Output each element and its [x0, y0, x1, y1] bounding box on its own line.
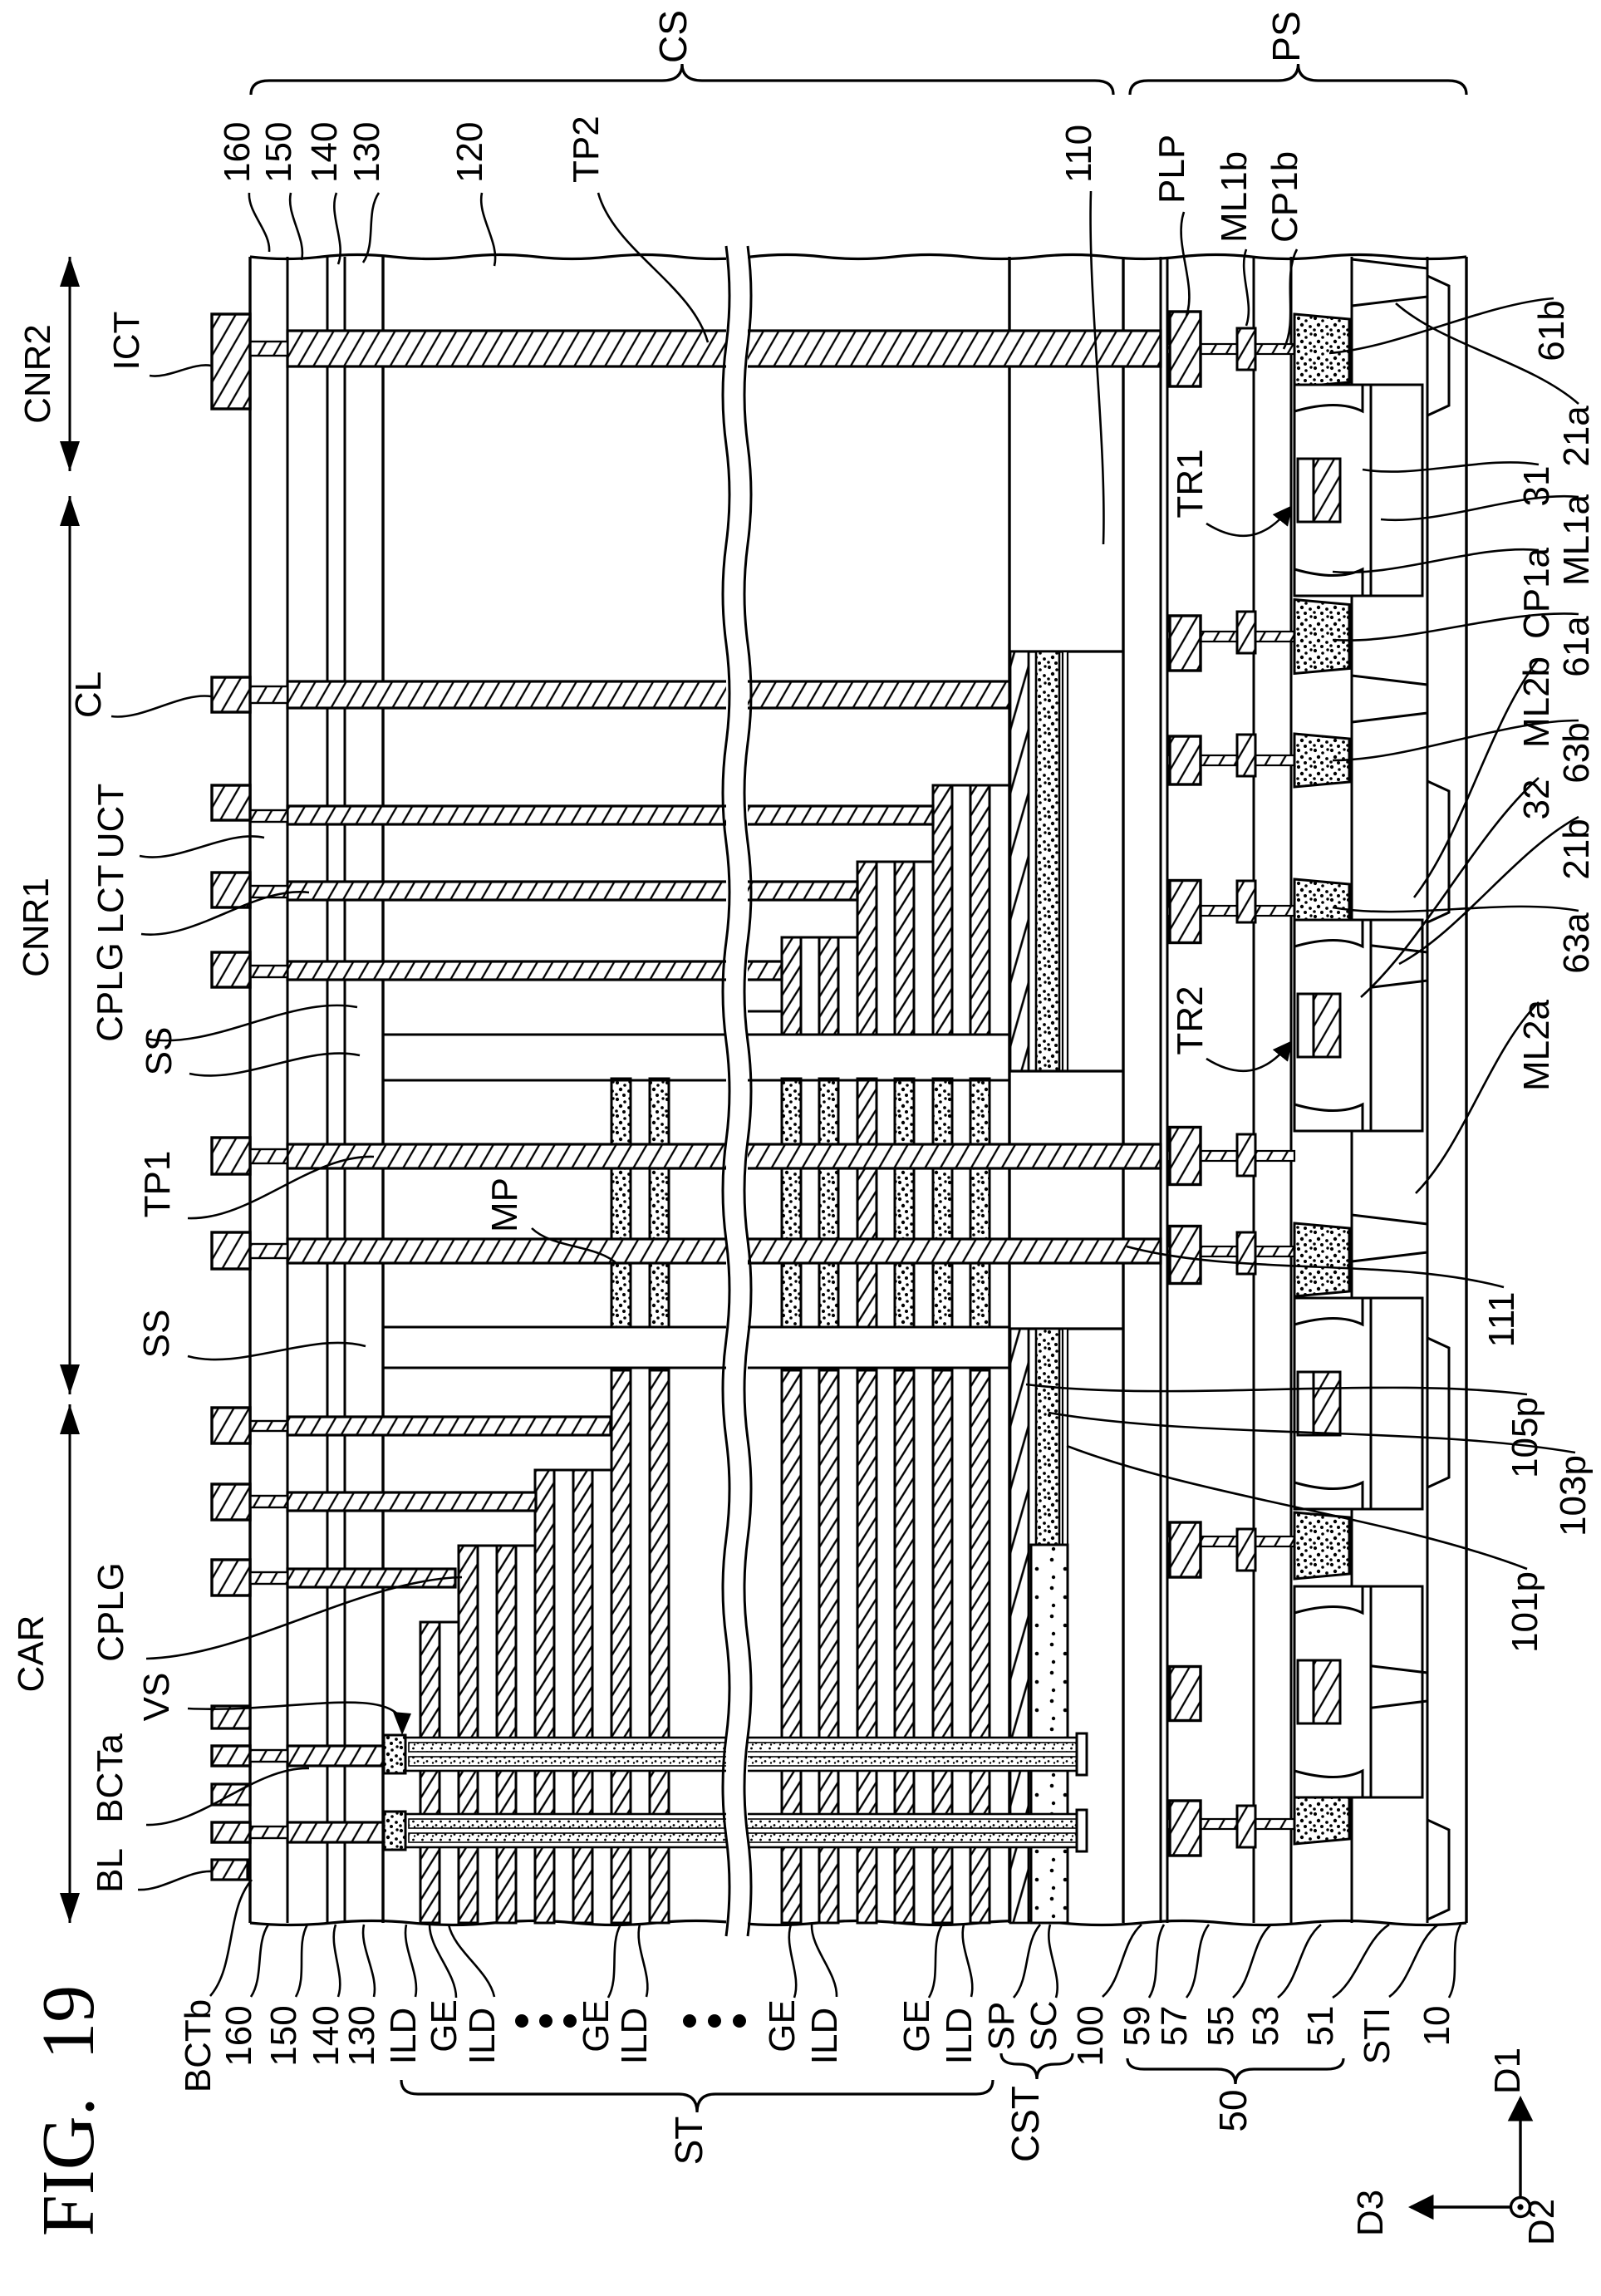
svg-text:55: 55	[1201, 2006, 1241, 2047]
svg-text:32: 32	[1516, 779, 1557, 820]
svg-text:CP1a: CP1a	[1516, 547, 1557, 639]
svg-text:GE: GE	[762, 1999, 803, 2053]
svg-text:STI: STI	[1357, 2008, 1397, 2064]
svg-text:59: 59	[1117, 2006, 1157, 2047]
svg-text:101p: 101p	[1505, 1571, 1545, 1653]
svg-text:53: 53	[1245, 2006, 1286, 2047]
svg-text:ML2a: ML2a	[1516, 999, 1557, 1091]
svg-text:ML1a: ML1a	[1556, 494, 1597, 586]
svg-text:CNR1: CNR1	[16, 878, 56, 977]
svg-text:ICT: ICT	[106, 312, 147, 371]
svg-text:D1: D1	[1487, 2048, 1528, 2094]
svg-text:63b: 63b	[1556, 722, 1597, 783]
svg-text:TR2: TR2	[1170, 986, 1211, 1055]
svg-text:CST: CST	[1004, 2086, 1047, 2162]
svg-text:SP: SP	[981, 2002, 1022, 2051]
svg-text:GE: GE	[424, 1999, 464, 2053]
svg-text:50: 50	[1211, 2089, 1255, 2131]
svg-text:10: 10	[1417, 2006, 1457, 2047]
svg-text:110: 110	[1058, 125, 1099, 183]
svg-text:CS: CS	[651, 10, 695, 63]
svg-text:ST: ST	[667, 2117, 710, 2166]
svg-text:21a: 21a	[1556, 406, 1597, 467]
svg-text:ML2b: ML2b	[1516, 656, 1557, 748]
svg-text:CPLG: CPLG	[90, 942, 130, 1042]
svg-text:UCT: UCT	[91, 784, 131, 858]
svg-text:ILD: ILD	[804, 2008, 845, 2064]
svg-text:ILD: ILD	[614, 2008, 655, 2064]
svg-text:ILD: ILD	[383, 2008, 424, 2064]
svg-text:61a: 61a	[1556, 616, 1597, 677]
svg-text:CP1b: CP1b	[1265, 151, 1305, 243]
svg-text:160: 160	[219, 2005, 259, 2066]
svg-text:57: 57	[1154, 2006, 1195, 2047]
svg-text:GE: GE	[576, 1999, 616, 2053]
svg-text:MP: MP	[484, 1177, 525, 1232]
svg-text:111: 111	[1481, 1292, 1522, 1348]
svg-text:BCTb: BCTb	[178, 1999, 219, 2092]
svg-text:SS: SS	[136, 1310, 177, 1359]
svg-text:CL: CL	[68, 671, 109, 718]
svg-text:103p: 103p	[1553, 1455, 1594, 1536]
svg-text:ML1b: ML1b	[1214, 151, 1255, 243]
svg-text:LCT: LCT	[91, 864, 131, 933]
svg-text:FIG. 19: FIG. 19	[27, 1985, 110, 2237]
svg-text:ILD: ILD	[939, 2008, 980, 2064]
svg-text:SS: SS	[139, 1027, 179, 1076]
svg-text:BL: BL	[90, 1848, 130, 1893]
svg-text:PS: PS	[1265, 11, 1308, 61]
svg-text:PLP: PLP	[1152, 135, 1192, 204]
svg-text:CAR: CAR	[11, 1615, 52, 1693]
svg-text:51: 51	[1300, 2006, 1341, 2047]
svg-text:150: 150	[258, 122, 299, 183]
svg-text:130: 130	[346, 122, 387, 183]
svg-text:GE: GE	[896, 1999, 937, 2053]
svg-text:140: 140	[306, 2005, 346, 2066]
svg-text:TR1: TR1	[1170, 449, 1211, 518]
svg-text:140: 140	[304, 122, 345, 183]
svg-text:BCTa: BCTa	[90, 1733, 130, 1823]
svg-text:D3: D3	[1350, 2190, 1391, 2236]
svg-text:CPLG: CPLG	[91, 1562, 131, 1662]
svg-text:SC: SC	[1024, 2000, 1064, 2051]
svg-text:160: 160	[217, 122, 258, 183]
svg-text:ILD: ILD	[462, 2008, 503, 2064]
svg-text:130: 130	[341, 2005, 382, 2066]
svg-text:CNR2: CNR2	[17, 324, 58, 424]
svg-text:61b: 61b	[1531, 300, 1572, 361]
svg-text:105p: 105p	[1505, 1397, 1545, 1478]
svg-text:63a: 63a	[1556, 912, 1597, 974]
svg-text:VS: VS	[136, 1673, 177, 1722]
svg-text:150: 150	[263, 2005, 304, 2066]
svg-text:TP2: TP2	[566, 116, 607, 183]
svg-text:D2: D2	[1521, 2199, 1562, 2245]
svg-text:TP1: TP1	[137, 1151, 178, 1218]
svg-text:120: 120	[449, 122, 490, 183]
svg-text:100: 100	[1070, 2005, 1111, 2066]
